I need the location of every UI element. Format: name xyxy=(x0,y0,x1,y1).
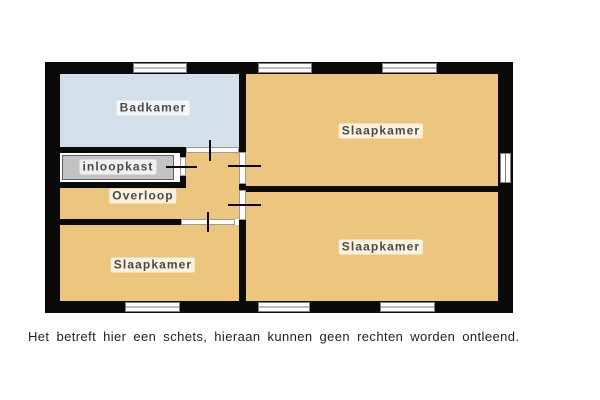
window-top-slaapkamer-1 xyxy=(258,63,312,73)
door-tick-slaapkamer-top-right xyxy=(228,165,261,167)
room-label-overloop: Overloop xyxy=(109,189,176,204)
door-tick-slaapkamer-bottom-right xyxy=(228,204,261,206)
wall-center-lower xyxy=(239,220,246,301)
window-bottom-slaapkamer-left xyxy=(125,302,180,312)
window-top-badkamer xyxy=(133,63,187,73)
room-overloop-upper xyxy=(186,153,239,219)
wall-badkamer-bottom xyxy=(60,147,186,153)
wall-outer-right xyxy=(498,62,513,313)
wall-inloopkast-right-stub-bottom xyxy=(180,176,186,182)
wall-right-bedrooms-divider xyxy=(246,186,498,192)
door-tick-inloopkast xyxy=(166,166,197,168)
door-tick-badkamer xyxy=(209,140,211,161)
disclaimer-text: Het betreft hier een schets, hieraan kun… xyxy=(28,329,519,344)
room-label-slaapkamer-bottom-right: Slaapkamer xyxy=(339,240,423,255)
room-label-slaapkamer-top-right: Slaapkamer xyxy=(339,124,423,139)
window-bottom-slaapkamer-right-1 xyxy=(258,302,310,312)
wall-outer-left xyxy=(45,62,60,313)
door-overloop-slaapkamer-top-right xyxy=(239,152,246,184)
wall-overloop-bottom xyxy=(60,219,181,225)
window-top-slaapkamer-2 xyxy=(382,63,437,73)
wall-center-upper xyxy=(239,74,246,152)
room-label-slaapkamer-bottom-left: Slaapkamer xyxy=(111,258,195,273)
door-badkamer-overloop xyxy=(186,147,239,153)
room-label-inloopkast: inloopkast xyxy=(79,160,156,175)
floorplan-sketch: Badkamer inloopkast Overloop Slaapkamer … xyxy=(0,0,600,400)
window-right-wall xyxy=(500,153,511,183)
window-bottom-slaapkamer-right-2 xyxy=(380,302,435,312)
door-tick-slaapkamer-bottom-left xyxy=(207,212,209,232)
wall-inloopkast-bottom xyxy=(60,182,186,188)
room-label-badkamer: Badkamer xyxy=(117,101,190,116)
